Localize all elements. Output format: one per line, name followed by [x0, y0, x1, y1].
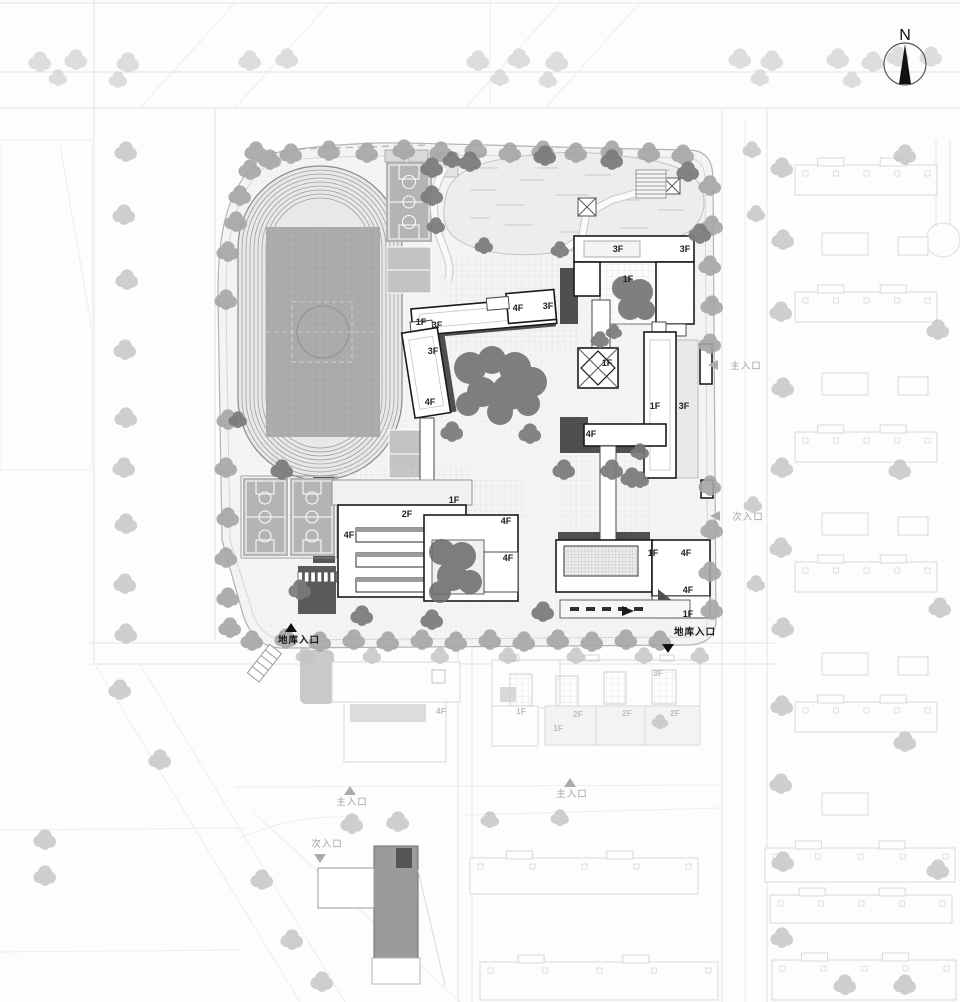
context-slab	[772, 953, 956, 1000]
floor-label: 3F	[428, 346, 439, 356]
pavilion-1	[578, 198, 596, 216]
site-plan-page: 3F3F1F4F3F1F3F3F4F1F1F3F4F1F2F4F4F4F1F4F…	[0, 0, 960, 1002]
floor-label: 2F	[402, 509, 413, 519]
context-slab	[795, 425, 937, 462]
floor-label: 1F	[449, 495, 460, 505]
floor-label: 1F	[650, 401, 661, 411]
stepped-bridge	[636, 170, 666, 198]
context-slab	[480, 955, 718, 1000]
floor-label: 3F	[680, 244, 691, 254]
floor-label: 4F	[501, 516, 512, 526]
entrance-arrow-icon	[564, 778, 576, 787]
floor-label: 4F	[503, 553, 514, 563]
entrance-label: 主入口	[730, 360, 762, 372]
bike-racks	[298, 572, 341, 582]
context-slab	[770, 888, 952, 923]
floor-label: 3F	[613, 244, 624, 254]
context-slab	[795, 555, 937, 592]
floor-label: 1F	[648, 548, 659, 558]
north-label: N	[899, 27, 911, 44]
building-D-bar	[584, 424, 666, 446]
floor-label: 4F	[681, 548, 692, 558]
floor-label: 2F	[622, 708, 632, 718]
floor-label: 4F	[425, 397, 436, 407]
skylight-slots	[356, 528, 430, 592]
floor-label: 2F	[670, 708, 680, 718]
entrance-label: 主入口	[336, 796, 368, 808]
site-plan-drawing: 3F3F1F4F3F1F3F3F4F1F1F3F4F1F2F4F4F4F1F4F…	[0, 0, 960, 1002]
floor-label: 1F	[516, 706, 526, 716]
entrance-arrow-icon	[344, 786, 356, 795]
floor-label: 1F	[553, 723, 563, 733]
entrance-label: 次入口	[311, 838, 343, 850]
sports-field	[266, 227, 380, 437]
floor-label: 4F	[586, 429, 597, 439]
floor-label: 3F	[679, 401, 690, 411]
atrium-pavilion	[578, 348, 618, 388]
floor-label: 3F	[653, 668, 663, 678]
building-A-wing	[656, 262, 694, 324]
entrance-label: 主入口	[556, 788, 588, 800]
floor-label: 1F	[416, 317, 427, 327]
context-slab	[795, 158, 937, 195]
entrance-label: 次入口	[732, 511, 764, 523]
floor-label: 4F	[683, 585, 694, 595]
floor-label: 4F	[436, 706, 446, 716]
entrance-label: 地库入口	[278, 634, 320, 646]
context-slab	[795, 695, 937, 732]
entrance-arrow-icon	[314, 854, 326, 863]
context-slab	[470, 851, 698, 894]
running-track	[238, 166, 402, 480]
context-slab	[795, 285, 937, 322]
floor-label: 1F	[623, 274, 634, 284]
floor-label: 1F	[683, 609, 694, 619]
floor-label: 4F	[513, 303, 524, 313]
floor-label: 4F	[344, 530, 355, 540]
entrance-label: 地库入口	[674, 626, 716, 638]
floor-label: 3F	[432, 320, 443, 330]
floor-label: 1F	[602, 358, 613, 368]
floor-label: 3F	[543, 301, 554, 311]
floor-label: 2F	[573, 709, 583, 719]
